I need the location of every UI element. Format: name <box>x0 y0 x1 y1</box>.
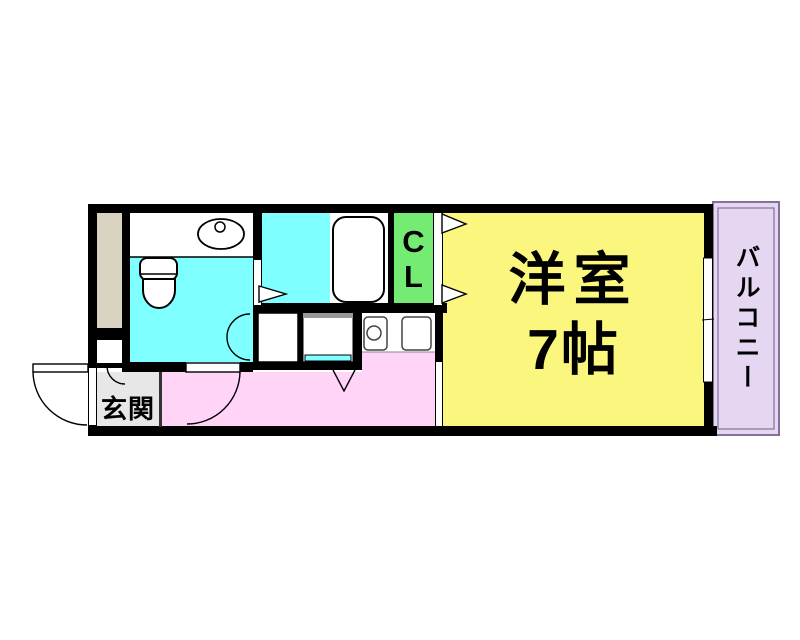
toilet-tank-icon <box>140 258 177 280</box>
wall-washroom-bath <box>253 213 262 260</box>
washroom-door-leaf <box>186 363 240 372</box>
closet-label: CL <box>394 224 433 294</box>
kitchen-floor <box>362 352 435 372</box>
basin-faucet-icon <box>215 222 225 232</box>
wall-entrance-hall-divider <box>159 372 162 427</box>
wall-kitchen-room <box>435 313 443 362</box>
pipe-space <box>97 213 122 328</box>
wall-pipe-right <box>122 213 130 372</box>
balcony-label-text: バルコニー <box>728 244 764 394</box>
wall-bottom <box>88 426 717 436</box>
front-door-swing-arc <box>33 372 87 425</box>
wall-balcony-lower <box>704 382 713 436</box>
wall-box-divider <box>298 313 303 362</box>
toilet-bowl-icon <box>143 279 175 308</box>
wall-washroom-bottom-right <box>240 362 253 372</box>
washer-box-top-edge <box>303 313 353 318</box>
wall-bath-kitchen <box>253 303 447 313</box>
room-doorway-opening <box>435 362 443 426</box>
front-door-leaf <box>33 364 88 372</box>
western-room-label: 洋室 <box>443 250 704 310</box>
front-door-opening <box>88 368 97 425</box>
wall-washer-kitchen <box>353 305 362 370</box>
burner-ring-icon <box>367 326 381 340</box>
wall-under-boxes <box>253 362 362 370</box>
entrance-label: 玄関 <box>97 389 159 426</box>
floorplan-canvas: 玄関 洋室 7帖 CL バルコニー <box>0 0 800 640</box>
hallway-floor <box>162 372 435 427</box>
wall-balcony-upper <box>704 204 713 258</box>
wall-washroom-storage <box>253 313 258 362</box>
washer-pan-strip <box>305 355 351 361</box>
wall-shoebox-bottom <box>95 363 130 368</box>
bathtub-icon <box>333 217 384 302</box>
western-room-size-label: 7帖 <box>443 320 704 380</box>
closet-label-text: CL <box>402 224 426 294</box>
wall-washroom-bottom-left <box>128 362 186 372</box>
wall-left-upper <box>88 204 97 368</box>
kitchen-sink-icon <box>402 317 431 350</box>
wall-left-lower <box>88 425 97 436</box>
wall-pipe-bottom <box>97 328 122 340</box>
balcony-label: バルコニー <box>713 202 779 435</box>
storage-box <box>258 313 298 362</box>
wall-top <box>88 204 713 213</box>
